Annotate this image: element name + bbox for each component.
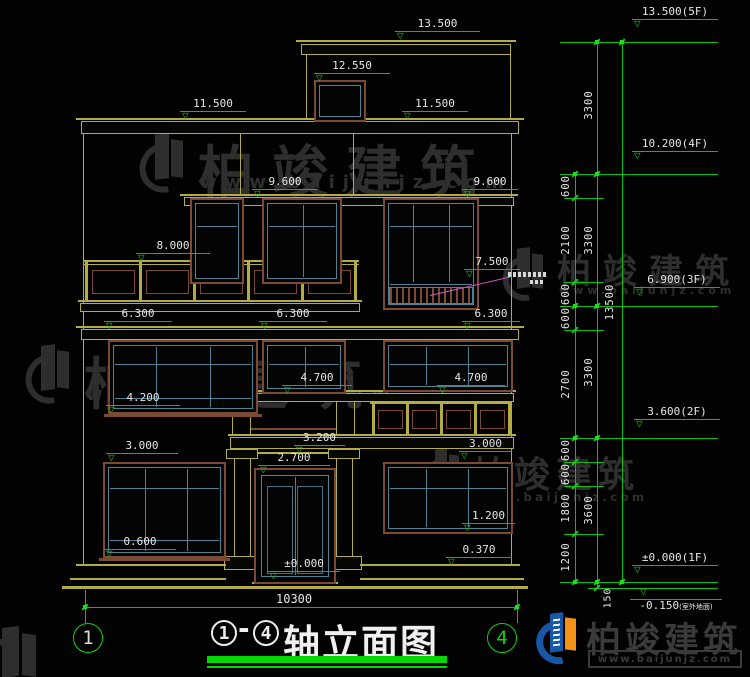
column-shaft (352, 459, 353, 556)
title-underline-thick (207, 656, 447, 663)
railing-2f-panel (378, 410, 403, 429)
plinth-line-left (76, 564, 226, 566)
floor-marker-outdoor: -0.150(室外地面) (630, 598, 722, 613)
railing-2f-panel (446, 410, 471, 429)
dim-text-600: 600 (560, 283, 572, 305)
floor-marker-1f: ±0.000(1F)▽ (632, 552, 718, 566)
watermark-logo-corner (0, 626, 50, 677)
dim-extension (560, 306, 718, 307)
dim-text-600: 600 (560, 307, 572, 329)
dim-extension-minor (564, 534, 604, 535)
level-marker-6300-mid: 6.300▽ (259, 308, 327, 322)
porch-wall-line (336, 402, 337, 434)
width-dim-line (85, 607, 517, 608)
porch-wall-line (354, 402, 355, 434)
dim-grip (595, 304, 599, 308)
dim-grip (620, 580, 624, 584)
slab-4700-band (230, 393, 514, 402)
level-marker-6300-right: 6.300▽ (462, 308, 520, 322)
balcony-panel (92, 270, 135, 294)
dim-text-3300: 3300 (583, 225, 595, 254)
level-marker-2700: 2.700▽ (258, 452, 330, 466)
axis-bubble-1: 1 (73, 623, 103, 653)
dim-text-600: 600 (560, 463, 572, 485)
penthouse-roof-line (296, 40, 516, 42)
ground-line (62, 586, 528, 589)
dim-text-600: 600 (560, 439, 572, 461)
level-marker-0000: ±0.000▽ (268, 558, 340, 572)
dim-text-13500: 13500 (604, 284, 616, 321)
title-underline-thin (207, 666, 447, 668)
column-shaft (250, 459, 251, 556)
dim-grip (595, 40, 599, 44)
floor-marker-5f: 13.500(5F)▽ (632, 6, 718, 20)
dim-text-3600: 3600 (583, 495, 595, 524)
wall-division-2 (353, 134, 354, 196)
brand-url: www.baijunjz.com (598, 654, 732, 665)
railing-leader-note (530, 280, 544, 284)
balcony-panel (146, 270, 189, 294)
dim-line-segments (575, 174, 576, 582)
level-marker-3000-left: 3.000▽ (106, 440, 178, 454)
penthouse-door (314, 80, 366, 122)
dim-extension-minor (564, 198, 604, 199)
dim-text-600: 600 (560, 175, 572, 197)
level-marker-11500-left: 11.500▽ (180, 98, 246, 112)
dim-grip (595, 436, 599, 440)
dim-grip (573, 436, 577, 440)
dim-line-total (622, 42, 623, 582)
dim-text-1800: 1800 (560, 493, 572, 522)
slab-3600-line (228, 434, 516, 436)
railing-2f-post (508, 404, 511, 434)
level-marker-8000: 8.000▽ (136, 240, 210, 254)
railing-2f-post (372, 404, 375, 434)
column-capital-right (328, 449, 360, 459)
penthouse-wall-left (306, 55, 307, 120)
dim-line-floors (597, 42, 598, 588)
level-marker-7500: 7.500▽ (464, 256, 520, 270)
dim-text-1200: 1200 (560, 542, 572, 571)
level-marker-1200: 1.200▽ (462, 510, 515, 524)
level-marker-13500: 13.500▽ (395, 18, 480, 32)
railing-2f-panel (480, 410, 505, 429)
dim-extension-minor (564, 330, 604, 331)
dim-text-2100: 2100 (560, 225, 572, 254)
dim-grip (595, 580, 599, 584)
level-marker-11500-right: 11.500▽ (402, 98, 468, 112)
window-3f-left-sill (104, 414, 262, 417)
level-marker-3000-right: 3.000▽ (459, 438, 512, 452)
slab-6300-fascia (81, 329, 519, 340)
column-capital-left (226, 449, 258, 459)
wall-division-1 (240, 134, 241, 196)
balcony-slab-line (78, 300, 362, 302)
level-marker-4700-mid: 4.700▽ (282, 372, 352, 386)
wall-left (83, 134, 84, 566)
dim-grip (515, 605, 519, 609)
level-marker-3200: 3.200▽ (294, 432, 345, 446)
slab-6300-line (76, 326, 524, 328)
dim-text-3300: 3300 (583, 90, 595, 119)
floor-marker-2f: 3.600(2F)▽ (634, 406, 720, 420)
dim-grip (573, 580, 577, 584)
plinth-line-right (360, 564, 520, 566)
level-marker-0600: 0.600▽ (104, 536, 176, 550)
railing-2f-post (406, 404, 409, 434)
dim-grip (573, 304, 577, 308)
plinth-base-left (70, 578, 226, 580)
dim-extension (560, 174, 718, 175)
main-roof-line (76, 118, 524, 120)
main-roof-fascia (81, 121, 519, 134)
dim-extension-minor (564, 486, 604, 487)
porch-door-head (251, 428, 336, 430)
railing-leader-note (508, 272, 546, 277)
balcony-post (139, 262, 142, 300)
plinth-base-right (360, 578, 524, 580)
column-shaft (234, 459, 235, 556)
watermark-logo-top (140, 133, 195, 195)
balcony-post (247, 262, 250, 300)
level-marker-4200: 4.200▽ (106, 392, 180, 406)
level-marker-12550: 12.550▽ (314, 60, 390, 74)
dim-grip (573, 172, 577, 176)
balcony-post (85, 262, 88, 300)
penthouse-wall-right (510, 55, 511, 120)
dim-grip (620, 40, 624, 44)
level-marker-0370: 0.370▽ (446, 544, 512, 558)
window-4f-left-b (262, 198, 342, 284)
watermark-logo-left (26, 344, 81, 406)
window-1f-left-sill (99, 558, 230, 561)
floor-marker-3f: 6.900(3F)▽ (634, 274, 720, 288)
railing-2f-post (440, 404, 443, 434)
dim-text-150: 150 (603, 587, 614, 608)
dim-extension (560, 582, 718, 583)
dim-text-2700: 2700 (560, 369, 572, 398)
outdoor-level-triangle: ▽ (640, 586, 647, 598)
axis-bubble-4: 4 (487, 623, 517, 653)
brand-url-box: www.baijunjz.com (588, 650, 742, 668)
dim-extension (560, 42, 718, 43)
title-dash: - (238, 612, 252, 645)
floor-marker-4f: 10.200(4F)▽ (632, 138, 718, 152)
title-axis-circle-4: 4 (253, 620, 279, 646)
brand-logo (536, 612, 586, 666)
dim-grip (83, 605, 87, 609)
width-dim-text: 10300 (276, 592, 312, 606)
railing-2f-panel (412, 410, 437, 429)
penthouse-roof-fascia (301, 44, 511, 55)
level-marker-9600-left: 9.600▽ (252, 176, 318, 190)
level-marker-9600-right: 9.600▽ (462, 176, 518, 190)
railing-2f-post (474, 404, 477, 434)
cad-elevation-canvas: 柏竣建筑 www.baijunjz.com 柏竣建筑 www.baijunjz.… (0, 0, 750, 677)
level-marker-4700-right: 4.700▽ (437, 372, 505, 386)
dim-extension (560, 438, 718, 439)
dim-text-3300: 3300 (583, 357, 595, 386)
balcony-post (354, 262, 357, 300)
level-marker-6300-left: 6.300▽ (104, 308, 172, 322)
column-shaft (336, 459, 337, 556)
title-axis-circle-1: 1 (211, 620, 237, 646)
dim-grip (595, 172, 599, 176)
